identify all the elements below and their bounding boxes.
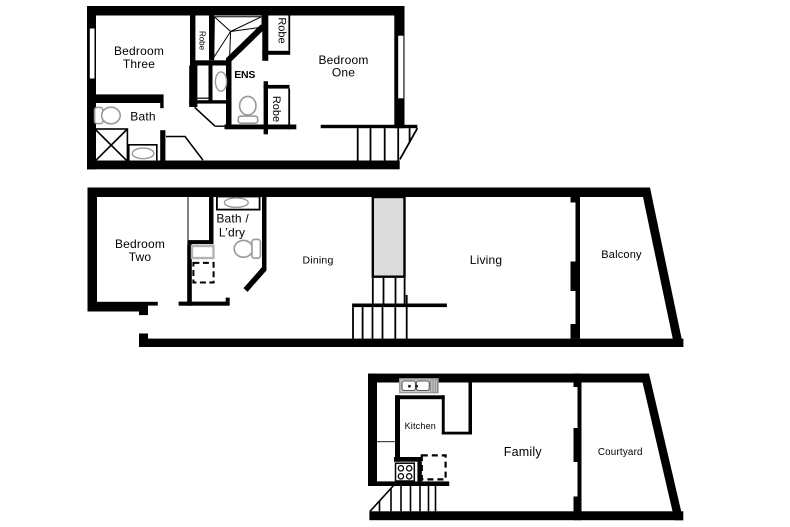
svg-text:Bath: Bath	[130, 110, 156, 124]
svg-text:Two: Two	[129, 250, 152, 264]
svg-text:ENS: ENS	[234, 69, 255, 81]
svg-text:Living: Living	[470, 253, 503, 267]
svg-text:Three: Three	[123, 57, 155, 71]
svg-text:Family: Family	[504, 445, 543, 459]
svg-text:Bedroom: Bedroom	[114, 44, 164, 58]
svg-text:Bedroom: Bedroom	[115, 237, 165, 251]
svg-text:Bath /: Bath /	[216, 212, 249, 226]
svg-text:Dining: Dining	[303, 254, 334, 266]
svg-text:Courtyard: Courtyard	[598, 447, 643, 458]
svg-text:Balcony: Balcony	[601, 249, 642, 261]
svg-text:One: One	[332, 66, 355, 80]
svg-text:Kitchen: Kitchen	[405, 421, 436, 431]
svg-text:Robe: Robe	[276, 17, 288, 43]
svg-text:L’dry: L’dry	[219, 225, 245, 239]
svg-text:Robe: Robe	[198, 31, 207, 51]
svg-text:Robe: Robe	[270, 96, 282, 122]
